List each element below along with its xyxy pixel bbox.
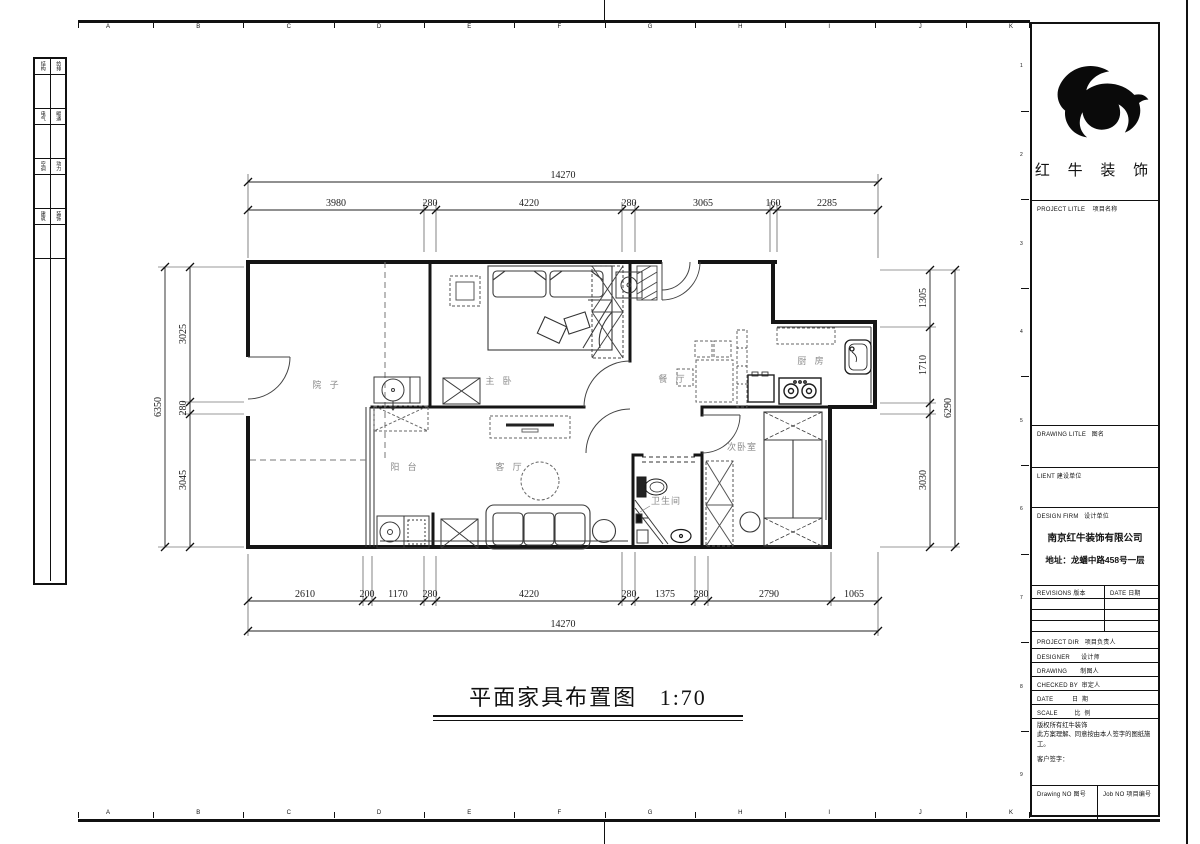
room-label-balcony: 阳 台 [390,461,419,472]
shower-corner [635,500,668,544]
dim-top-4: 3065 [693,198,713,209]
plan-title-text: 平面家具布置图 [469,685,637,710]
room-label-dining: 餐 厅 [658,373,687,384]
dim-bottom-8: 2790 [759,589,779,600]
dim-bottom-1: 200 [360,589,375,600]
dim-bottom-6: 1375 [655,589,675,600]
dim-bottom-7: 280 [694,589,709,600]
toilet [637,477,667,497]
bedroom2-wardrobe [706,461,733,546]
dim-bottom-9: 1065 [844,589,864,600]
room-label-kitchen: 厨 房 [797,355,826,366]
dim-top-2: 4220 [519,198,539,209]
master-bed [488,266,612,350]
dim-left-1: 280 [178,401,189,416]
fridge [748,372,774,402]
dim-bottom-2: 1170 [388,589,408,600]
bath-sink [671,530,691,543]
master-nightstand-left [450,276,480,306]
master-wardrobe [592,266,623,358]
dim-right-2: 3030 [918,470,929,490]
window-lines [366,327,871,547]
room-label-living: 客 厅 [495,461,524,472]
stove [779,378,821,404]
courtyard-dashed-boundary [250,262,385,460]
dim-bottom-total: 14270 [551,619,576,630]
hall-shoe-cabinet [637,266,657,300]
courtyard-cabinet [374,406,428,431]
room-label-bathroom: 卫生间 [651,495,681,506]
dim-left-0: 3025 [178,324,189,344]
dim-bottom-0: 2610 [295,589,315,600]
sofa [486,505,590,549]
plan-title: 平面家具布置图 1:70 [433,680,743,721]
dim-top-0: 3980 [326,198,346,209]
dim-bottom-3: 280 [423,589,438,600]
balcony-cabinet [441,519,478,548]
dim-right-1: 1710 [918,355,929,375]
courtyard-basin [374,377,420,410]
doors [248,262,740,453]
bedroom2-stool [740,512,760,532]
living-table [521,462,559,500]
balcony-washer-sink [377,516,429,548]
kitchen-counter [777,328,835,344]
dim-right-total: 6290 [943,398,954,418]
dim-left-2: 3045 [178,470,189,490]
bedroom2-bed [764,412,822,546]
room-label-courtyard: 院 子 [312,379,341,390]
plan-scale: 1:70 [660,685,707,710]
room-label-master: 主 卧 [485,375,514,386]
room-label-bedroom2: 次卧室 [727,441,757,452]
master-chairs [537,312,590,343]
interior-walls [372,262,830,547]
tv-cabinet [490,416,570,438]
dim-left-total: 6350 [153,397,164,417]
kitchen-sink [845,340,871,374]
dim-bottom-4: 4220 [519,589,539,600]
dim-right-0: 1305 [918,288,929,308]
dim-top-total: 14270 [551,170,576,181]
dining-set [677,341,733,402]
side-chair [593,520,616,543]
master-ac-cabinet [443,378,480,404]
dim-top-1: 280 [423,198,438,209]
dim-top-6: 2285 [817,198,837,209]
plan-title-underline [433,715,743,721]
sliding-door [642,457,695,462]
kitchen-shelf [737,330,747,407]
